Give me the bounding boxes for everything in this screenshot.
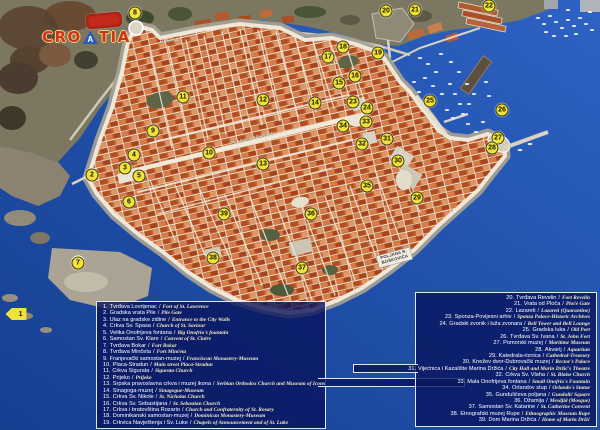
legend-item-number: 12. [103,375,111,381]
legend-item-english: Fort Bokar [152,343,177,349]
legend-item-separator: / [514,314,516,320]
dubrovnik-tourist-map: CROATIA PELINEPLACA STRADUNPOLJANA R. BO… [0,0,600,430]
legend-item-separator: / [155,388,157,394]
legend-item-english: Prijeko [135,375,151,381]
legend-item-croatian: Franjevački samostan-muzej [110,356,181,362]
legend-item-number: 34. [502,385,510,391]
legend-item-number: 21. [514,301,522,307]
marker-number: 20 [382,8,390,15]
map-marker: 14 [309,97,322,110]
legend-item: 39. Dom Marina Držića / Home of Marin Dr… [416,417,590,423]
marker-number: 35 [363,183,371,190]
legend-item-english: Fort of St. Lawrence [163,304,209,310]
legend-item-number: 9. [103,356,108,362]
legend-item-number: 26. [500,334,508,340]
legend-item-english: Aquarium [567,347,590,353]
legend-item-separator: / [543,353,545,359]
legend-item-croatian: Velika Onofrijeva fontana [110,330,172,336]
map-marker: 2 [86,169,99,182]
legend-item-separator: / [174,330,176,336]
map-marker: 10 [203,147,216,160]
legend-item-number: 17. [103,407,111,413]
marker-number: 11 [179,94,186,101]
marker-number: 37 [298,265,306,272]
legend-item-croatian: Samostan Sv. Klare [110,336,159,342]
legend-item-english: Cathedral-Treasury [546,353,590,359]
map-marker: 20 [380,5,393,18]
legend-item-separator: / [564,347,566,353]
legend-item-separator: / [549,385,551,391]
legend-item-croatian: Placa-Stradun [113,362,148,368]
marker-number: 23 [349,99,357,106]
legend-item-croatian: Orlandov stup [512,385,547,391]
legend-item-separator: / [132,375,134,381]
legend-item-english: Main street Placa-Stradun [154,362,213,368]
marker-number: 10 [205,150,213,157]
legend-item-croatian: Tvrđava Lovrijenac [110,304,157,310]
legend-item-separator: / [159,304,161,310]
map-marker: 26 [496,104,509,117]
legend-item-croatian: Crkva Sv. Nikole [113,394,154,400]
legend-item-separator: / [522,411,524,417]
legend-item-separator: / [524,321,526,327]
legend-item-number: 14. [103,388,111,394]
map-marker: 39 [218,208,231,221]
marker-number: 18 [339,44,347,51]
marker-number: 25 [426,98,434,105]
legend-item-number: 23. [445,314,453,320]
map-marker: 22 [483,0,496,13]
legend-item-separator: / [529,379,531,385]
legend-item-number: 11. [103,368,110,374]
legend-item-croatian: Crkva Sv. Vlaha [505,372,545,378]
map-marker: 23 [347,96,360,109]
map-marker: 30 [392,155,405,168]
legend-item-separator: / [537,404,539,410]
map-marker: 7 [72,257,85,270]
marker-number: 32 [358,141,366,148]
marker-number: 17 [324,54,332,61]
legend-item-separator: / [545,340,547,346]
legend-item-croatian: Dom Marina Držića [488,417,536,423]
legend-item-english: Home of Marin Držić [542,417,590,423]
legend-item-separator: / [190,420,192,426]
legend-item-number: 24. [440,321,448,327]
marker-number: 27 [494,135,502,142]
legend-item-number: 31. [408,366,416,372]
logo-text-pre: CRO [42,30,82,45]
map-marker: 31 [381,133,394,146]
legend-item-number: 2. [103,310,108,316]
legend-item-number: 37. [469,404,477,410]
legend-item-separator: / [538,417,540,423]
legend-item-number: 36. [514,398,522,404]
legend-item: 19. Crkvica Navještenja i Sv. Luke / Cha… [103,420,325,426]
marker-number: 14 [311,100,319,107]
marker-number: 15 [335,80,343,87]
map-marker: 6 [123,196,136,209]
legend-item-number: 22. [506,308,514,314]
legend-item-croatian: Tvrđava Minčeta [110,349,151,355]
legend-item-croatian: Lazareti [516,308,536,314]
legend-item-croatian: Vrata od Ploča [524,301,561,307]
legend-item-number: 15. [103,394,111,400]
legend-item-croatian: Gradski zvonik i luža zvonara [449,321,522,327]
legend-item-english: Church and Confraternity of St. Rosary [186,407,274,413]
legend-item-english: St. Sebastian Church [173,401,220,407]
map-marker: 35 [361,180,374,193]
marker-number: 33 [362,119,370,126]
legend-item-number: 39. [479,417,487,423]
legend-item-separator: / [191,413,193,419]
marker-number: 28 [488,145,496,152]
legend-item-separator: / [562,301,564,307]
map-marker: 37 [296,262,309,275]
marker-number: 13 [259,161,267,168]
legend-right: 20. Tvrđava Revelin / Fort Revelin 21. V… [415,292,597,427]
map-marker: 28 [486,142,499,155]
legend-item-croatian: Prijeko [113,375,130,381]
legend-item-croatian: Pomorski muzej [503,340,543,346]
marker-number: 19 [374,50,382,57]
legend-item-number: 6. [103,336,108,342]
legend-item-number: 20. [506,295,514,301]
map-marker: 21 [409,4,422,17]
marker-number: 34 [339,123,347,130]
legend-item-croatian: Dominikanski samostan-muzej [113,413,189,419]
legend-item-english: St. Nicholas Church [159,394,204,400]
marker-number: 7 [76,260,80,267]
logo-wordmark: CROATIA [42,30,131,45]
legend-item-croatian: Gradska luka [532,327,565,333]
map-marker: 25 [424,95,437,108]
legend-item-english: Small Onofrio's Fountain [532,379,590,385]
legend-item-number: 7. [103,343,108,349]
map-marker: 13 [257,158,270,171]
legend-item-separator: / [546,398,548,404]
legend-item-english: Sigurata Church [155,368,193,374]
legend-item-english: Rector's Palace [555,359,590,365]
legend-item-english: Lazareti (Quarantine) [541,308,590,314]
legend-item-separator: / [150,362,152,368]
marker-number: 2 [90,172,94,179]
legend-item-english: St. Catherine Convent [541,404,590,410]
legend-item-separator: / [182,407,184,413]
legend-item-english: Big Onofrio's fountain [177,330,228,336]
legend-item-separator: / [567,327,569,333]
legend-item-separator: / [153,349,155,355]
map-marker: 15 [333,77,346,90]
legend-item-number: 29. [489,353,497,359]
legend-item-number: 38. [451,411,459,417]
legend-item-croatian: Crkva Sv. Spasa [110,323,151,329]
logo-text-post: TIA [99,30,131,45]
marker-number: 29 [413,195,421,202]
legend-item-english: Chapels of Announcement and of St. Luke [193,420,288,426]
map-marker: 34 [337,120,350,133]
legend-item-croatian: Tvrđava Sv. Ivana [510,334,555,340]
marker-number: 9 [151,128,155,135]
legend-item-english: Orlando's Statue [552,385,590,391]
map-marker: 11 [177,91,190,104]
legend-item-english: Fort Minčeta [157,349,187,355]
legend-item-croatian: Sinagoga-muzej [113,388,153,394]
marker-number: 38 [209,255,217,262]
legend-item-croatian: Samostan Sv. Katarine [478,404,535,410]
legend-item-number: 13. [103,381,111,387]
legend-item-english: St. John Fort [560,334,590,340]
legend-item-number: 35. [486,392,494,398]
legend-item-english: Ethnographic Museum Rupe [525,411,590,417]
legend-item-english: City Hall and Marin Držić's Theatre [509,366,590,372]
map-marker: 18 [337,41,350,54]
marker-number: 26 [498,107,506,114]
map-marker: 29 [411,192,424,205]
marker-number: 21 [411,7,419,14]
legend-item-number: 4. [103,323,108,329]
map-marker: 9 [147,125,160,138]
map-marker: 3 [119,162,132,175]
legend-item-separator: / [505,366,507,372]
legend-item-english: Bell Tower and Bell Lounge [528,321,590,327]
legend-item-croatian: Tvrđava Revelin [516,295,556,301]
legend-item-english: Serbian Orthodox Church and Museum of Ic… [217,381,325,387]
map-marker: 16 [349,70,362,83]
legend-item-separator: / [156,394,158,400]
legend-item-english: Maritime Museum [549,340,591,346]
marker-number: 22 [485,3,493,10]
marker-number: 16 [351,73,359,80]
legend-item-number: 28. [535,347,543,353]
map-marker: 4 [128,149,141,162]
marker-number: 1 [19,311,23,318]
legend-item-english: St. Blaise Church [551,372,590,378]
legend-item-number: 19. [103,420,111,426]
legend-item-english: Sponza Palace-Historic Archives [517,314,590,320]
marker-number: 12 [259,97,267,104]
legend-item-separator: / [161,336,163,342]
map-marker: 24 [361,102,374,115]
legend-item-croatian: Tvrđava Bokar [110,343,146,349]
legend-item-croatian: Gradska vrata Pile [110,310,156,316]
legend-item-separator: / [168,317,170,323]
legend-item-croatian: Etnografski muzej Rupe [460,411,519,417]
legend-item-english: Old Port [571,327,590,333]
legend-item-english: Entrance to the City Walls [172,317,230,323]
legend-item-separator: / [213,381,215,387]
legend-item-croatian: Džamija [524,398,544,404]
marker-number: 6 [127,199,131,206]
legend-item-english: Sinagogue-Museum [159,388,204,394]
legend-item-croatian: Knežev dvor-Dubrovački muzej [472,359,549,365]
marker-number: 31 [383,136,391,143]
logo-sail-triangle-icon: A [83,31,98,44]
legend-item-croatian: Akvarij [545,347,562,353]
legend-item-separator: / [552,359,554,365]
logo-red-square [85,11,122,29]
legend-item-english: Mesdjid (Mosque) [550,398,590,404]
legend-item-separator: / [537,308,539,314]
legend-item-separator: / [151,368,153,374]
legend-item-english: Pile Gate [161,310,182,316]
legend-item-separator: / [158,310,160,316]
marker-number: 30 [394,158,402,165]
legend-item-number: 33. [457,379,465,385]
legend-item-croatian: Crkva i bratovština Rozario [113,407,180,413]
legend-item-croatian: Crkva Sigurata [112,368,149,374]
legend-item-croatian: Sponza-Povijesni arhiv [455,314,512,320]
legend-item-number: 27. [493,340,501,346]
marker-number: 24 [363,105,371,112]
marker-number: 36 [307,211,315,218]
legend-item-english: Convent of St. Claire [164,336,211,342]
legend-item-separator: / [557,334,559,340]
map-marker: 12 [257,94,270,107]
legend-item-number: 3. [103,317,108,323]
legend-item-number: 30. [463,359,471,365]
legend-item-croatian: Crkvica Navještenja i Sv. Luke [113,420,188,426]
legend-item-separator: / [148,343,150,349]
legend-item-english: Church of St. Saviour [156,323,205,329]
legend-item-number: 1. [103,304,108,310]
marker-number: 5 [137,173,141,180]
map-marker: 38 [207,252,220,265]
legend-item-croatian: Ulaz na gradske zidine [110,317,167,323]
map-marker: 32 [356,138,369,151]
map-marker: 36 [305,208,318,221]
legend-item-english: Dominican Monastery-Museum [194,413,265,419]
legend-item-english: Fort Revelin [562,295,590,301]
legend-item-number: 25. [523,327,531,333]
legend-left: 1. Tvrđava Lovrijenac / Fort of St. Lawr… [96,301,326,429]
legend-item-croatian: Gundulićeva poljana [496,392,547,398]
legend-item-separator: / [153,323,155,329]
marker-number: 4 [132,152,136,159]
map-marker: 19 [372,47,385,60]
map-marker: 8 [129,7,142,20]
legend-item-number: 10. [103,362,111,368]
marker-number: 3 [123,165,127,172]
legend-item-croatian: Mala Onofrijeva fontana [467,379,526,385]
legend-item-separator: / [169,401,171,407]
marker-number: 39 [220,211,228,218]
legend-item-number: 18. [103,413,111,419]
legend-item-separator: / [558,295,560,301]
legend-item-croatian: Katedrala-riznica [499,353,541,359]
legend-item-number: 32. [496,372,504,378]
legend-item-separator: / [547,372,549,378]
map-marker: 5 [133,170,146,183]
legend-item-separator: / [183,356,185,362]
legend-item-number: 5. [103,330,108,336]
legend-item-english: Ploče Gate [566,301,590,307]
marker-number: 8 [133,10,137,17]
legend-item-number: 16. [103,401,111,407]
legend-item-croatian: Srpska pravoslavna crkva i muzej ikona [113,381,211,387]
map-marker: 33 [360,116,373,129]
map-marker: 17 [322,51,335,64]
legend-item-croatian: Vijećnica i Kazalište Marina Držića [418,366,503,372]
legend-item-number: 8. [103,349,108,355]
legend-item-english: Franciscan Monastery-Museum [186,356,258,362]
legend-item-croatian: Crkva Sv. Sebastijana [113,401,168,407]
